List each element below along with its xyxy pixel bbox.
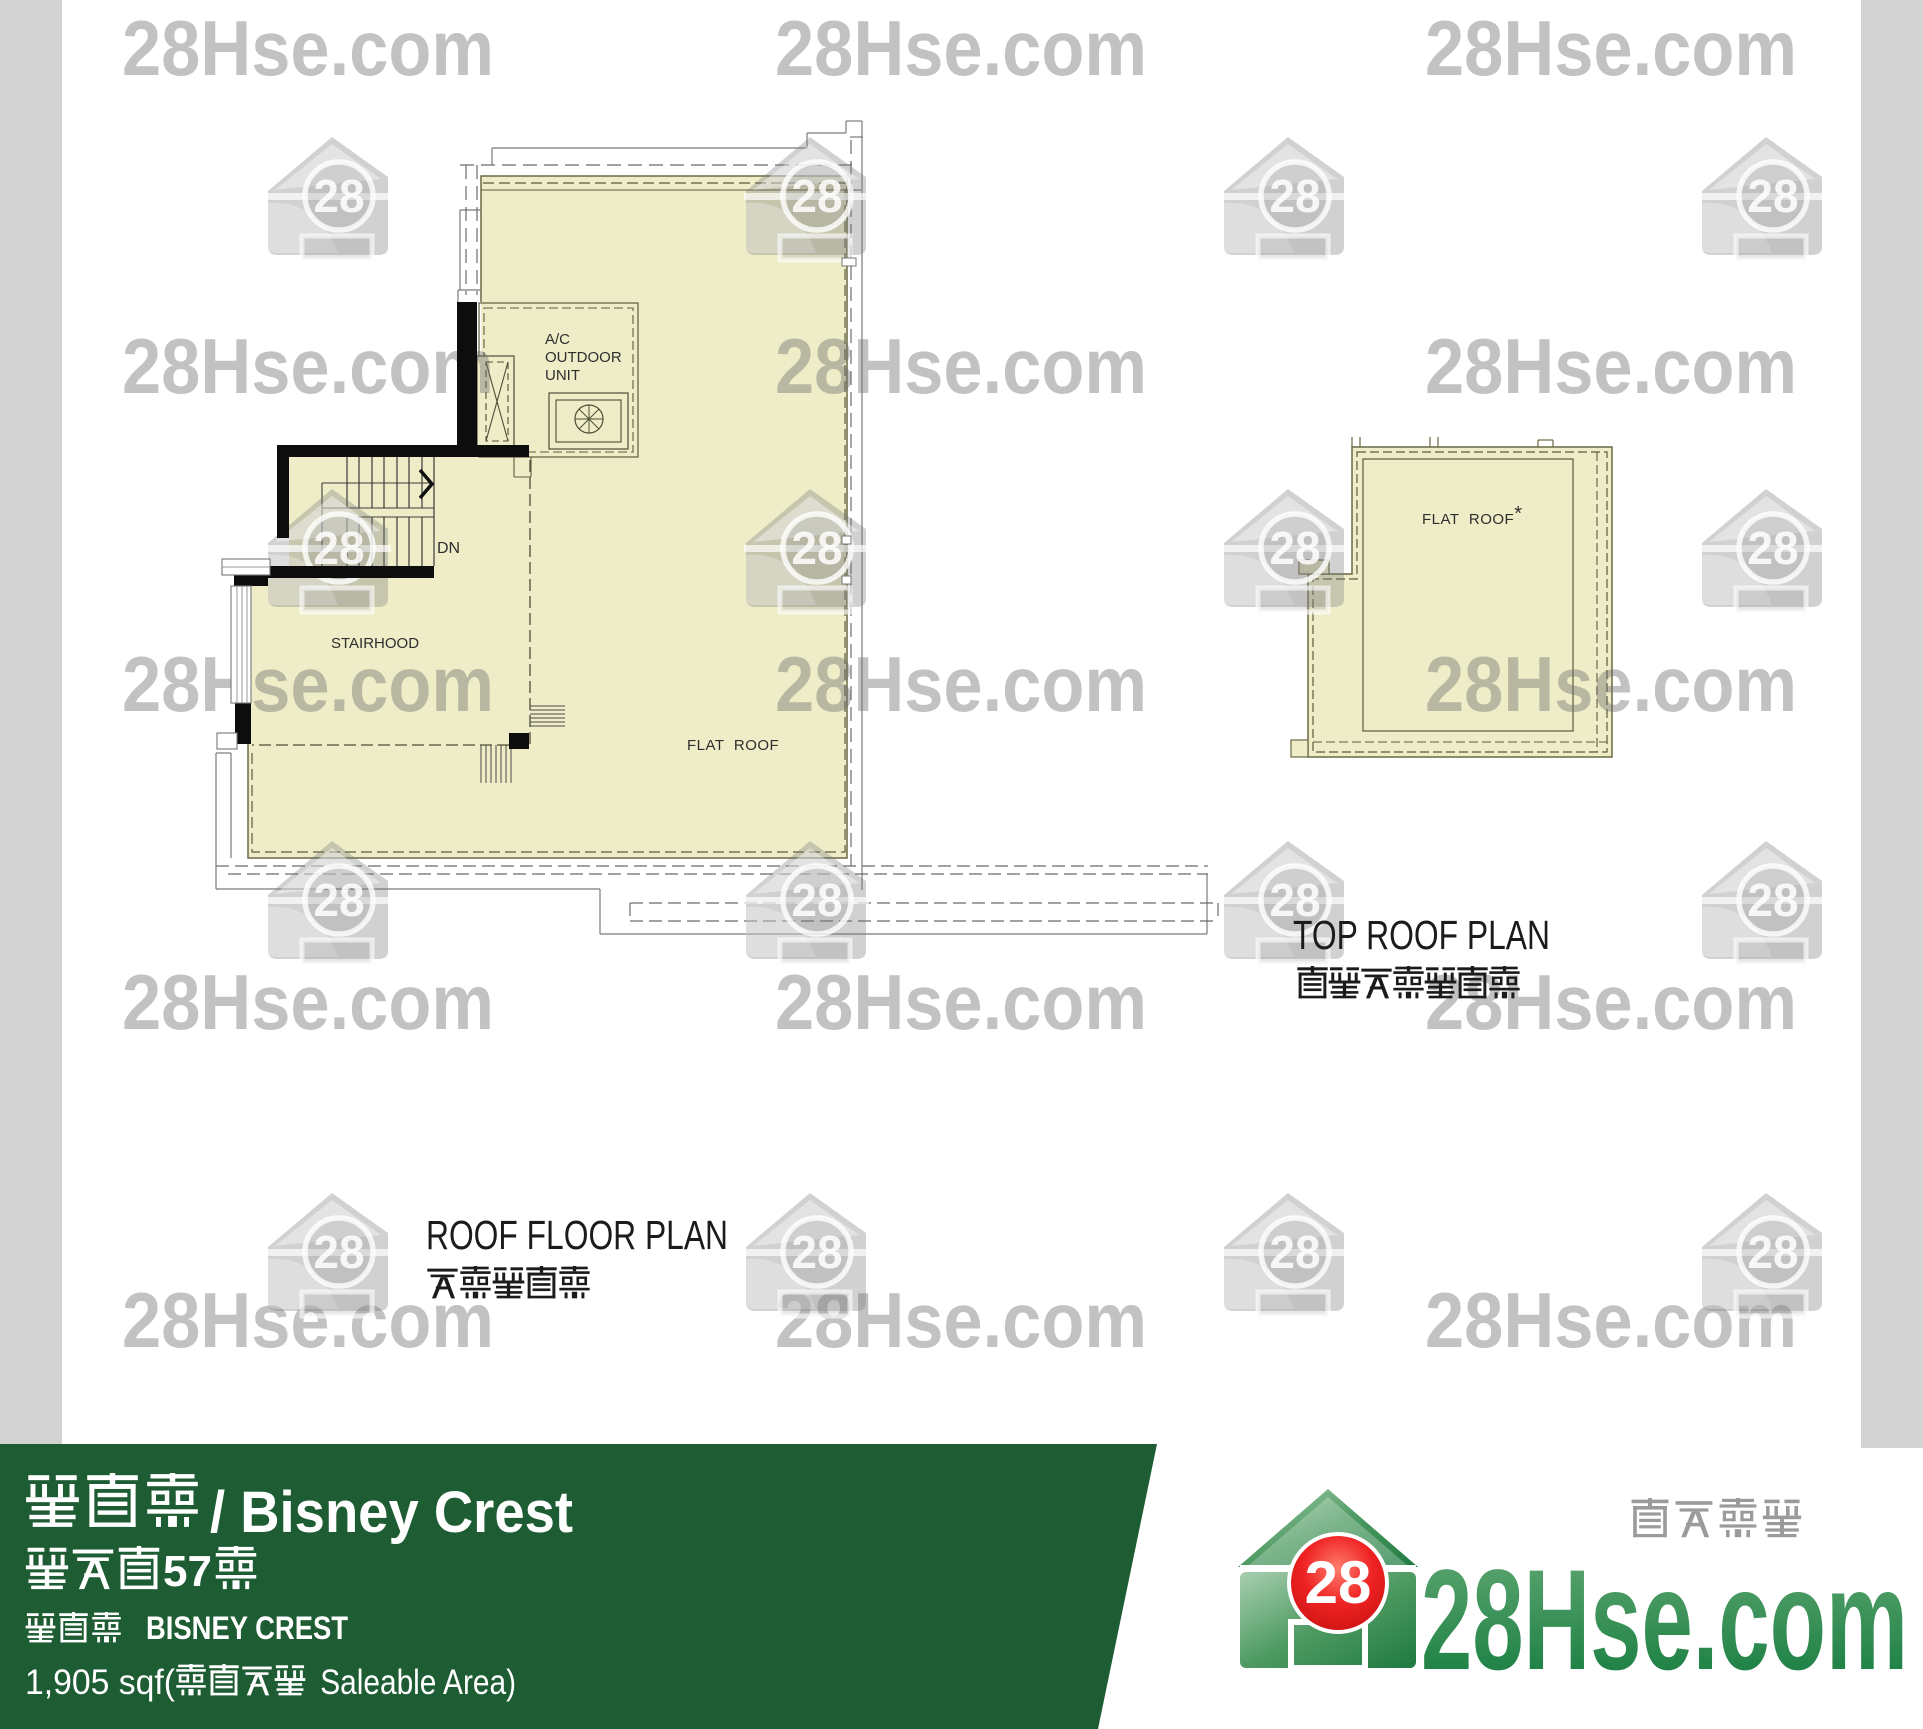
svg-text:UNIT: UNIT (545, 367, 580, 384)
svg-text:STAIRHOOD: STAIRHOOD (331, 635, 419, 652)
svg-text:BISNEY CREST: BISNEY CREST (146, 1610, 348, 1646)
svg-text:A/C: A/C (545, 331, 570, 348)
svg-text:OUTDOOR: OUTDOOR (545, 349, 622, 366)
svg-text:28: 28 (1305, 1549, 1372, 1616)
svg-text:DN: DN (437, 540, 460, 557)
svg-text:28Hse.com: 28Hse.com (1425, 640, 1797, 728)
svg-text:28Hse.com: 28Hse.com (775, 640, 1147, 728)
svg-text:28Hse.com: 28Hse.com (775, 322, 1147, 410)
svg-text:28Hse.com: 28Hse.com (1425, 958, 1797, 1046)
svg-text:28Hse.com: 28Hse.com (1425, 4, 1797, 92)
svg-text:28Hse.com: 28Hse.com (1425, 322, 1797, 410)
svg-text:28Hse.com: 28Hse.com (122, 322, 494, 410)
svg-text:TOP ROOF PLAN: TOP ROOF PLAN (1293, 912, 1550, 958)
svg-text:28Hse.com: 28Hse.com (1421, 1541, 1908, 1700)
svg-text:28Hse.com: 28Hse.com (122, 958, 494, 1046)
svg-text:28Hse.com: 28Hse.com (775, 958, 1147, 1046)
svg-text:57: 57 (163, 1547, 212, 1596)
svg-text:/ Bisney Crest: / Bisney Crest (210, 1480, 573, 1545)
svg-text:28Hse.com: 28Hse.com (122, 4, 494, 92)
svg-text:Saleable Area): Saleable Area) (312, 1663, 516, 1702)
svg-text:FLAT ROOF: FLAT ROOF (687, 737, 779, 754)
svg-text:28Hse.com: 28Hse.com (775, 4, 1147, 92)
svg-text:28Hse.com: 28Hse.com (122, 640, 494, 728)
svg-text:ROOF FLOOR PLAN: ROOF FLOOR PLAN (426, 1212, 728, 1258)
svg-text:1,905 sqf(: 1,905 sqf( (25, 1663, 175, 1702)
